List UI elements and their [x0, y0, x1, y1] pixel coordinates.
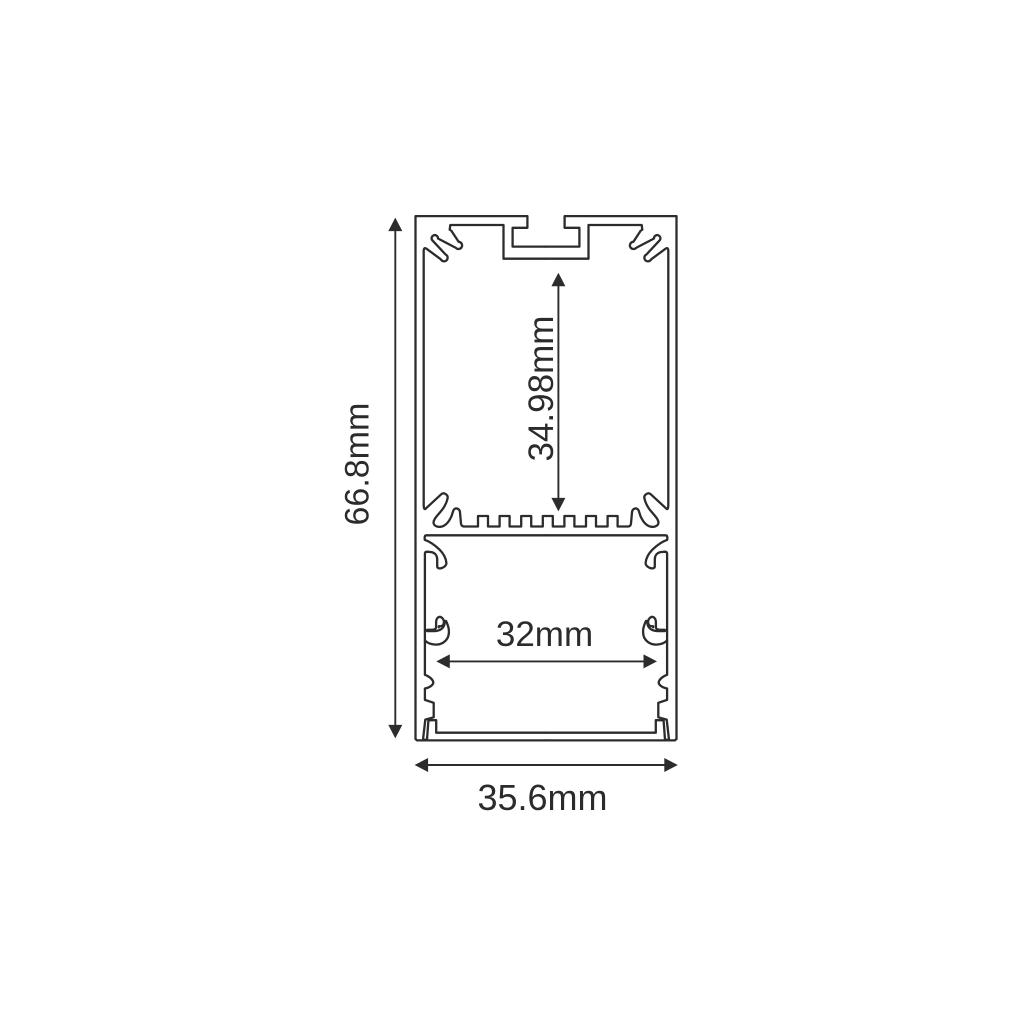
svg-text:34.98mm: 34.98mm — [522, 316, 561, 462]
svg-text:32mm: 32mm — [496, 615, 593, 654]
svg-text:66.8mm: 66.8mm — [339, 403, 377, 526]
svg-text:35.6mm: 35.6mm — [477, 777, 607, 818]
